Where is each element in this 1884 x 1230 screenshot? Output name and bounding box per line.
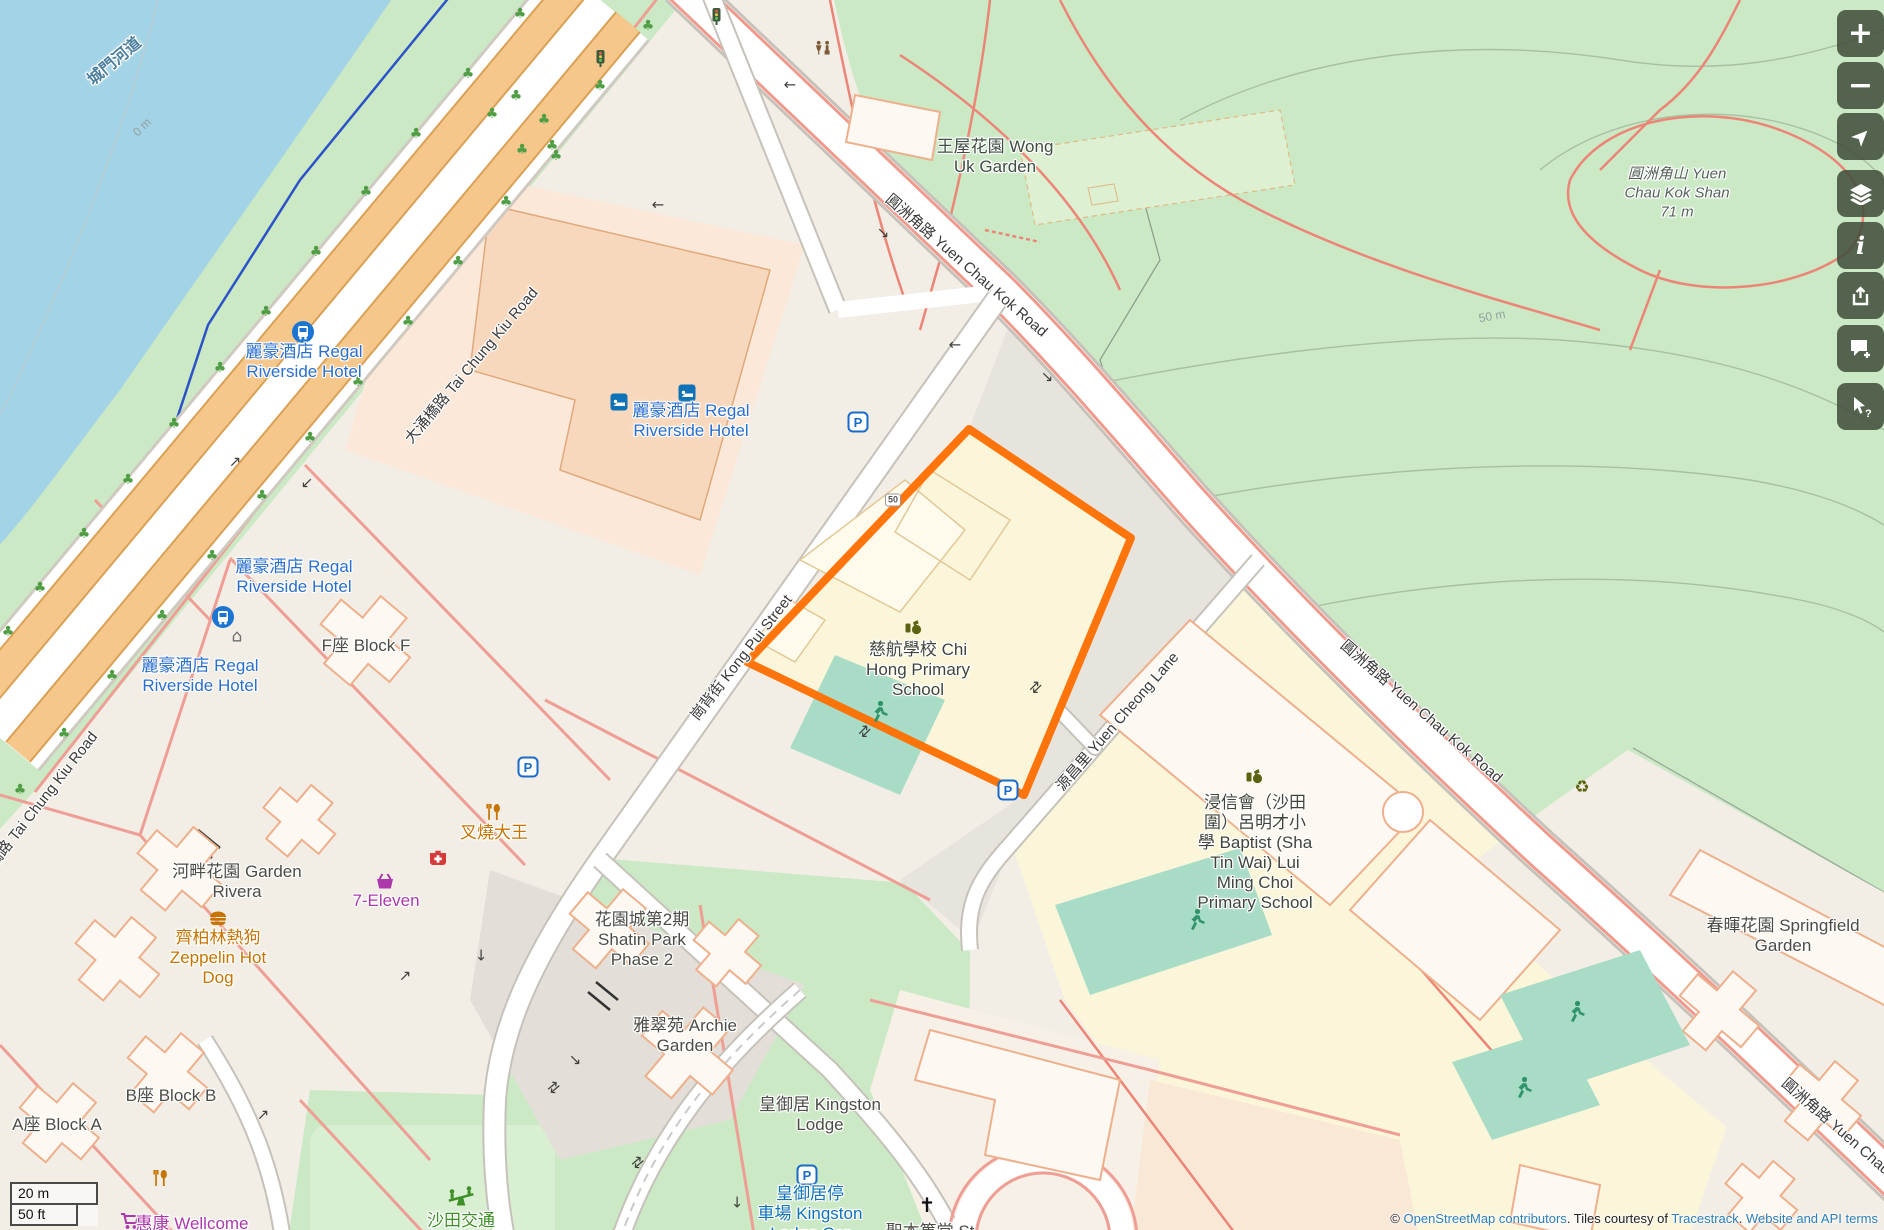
oneway-arrow-icon: ↓ (475, 949, 488, 964)
st-benedict-label: 聖本篤堂 St (886, 1222, 975, 1230)
tree-icon: ♣ (256, 489, 269, 503)
parking-icon: P (518, 757, 539, 778)
school-icon (1245, 769, 1264, 786)
info-icon: i (1856, 231, 1865, 260)
attribution-sep: . (1739, 1211, 1746, 1226)
wellcome-label: 惠康 Wellcome (135, 1214, 248, 1230)
scale-bar: 20 m 50 ft (10, 1182, 98, 1226)
wong-uk-garden-label: 王屋花園 WongUk Garden (937, 137, 1054, 177)
tree-icon: ♣ (538, 113, 551, 127)
info-button[interactable]: i (1837, 222, 1884, 269)
tree-icon: ♣ (58, 727, 71, 741)
archie-garden-label: 雅翠苑 ArchieGarden (633, 1016, 737, 1056)
zoom-in-button[interactable]: + (1837, 10, 1884, 57)
tracestrack-link[interactable]: Tracestrack (1671, 1211, 1738, 1226)
attribution: © OpenStreetMap contributors. Tiles cour… (1390, 1211, 1878, 1226)
tree-icon: ♣ (500, 195, 513, 209)
shelter-icon: ⌂ (232, 629, 243, 646)
tree-icon: ♣ (304, 431, 317, 445)
hotel-icon (679, 385, 696, 402)
share-icon (1850, 285, 1872, 307)
svg-text:P: P (1004, 783, 1013, 798)
runner-icon (1565, 1001, 1585, 1024)
tree-icon: ♣ (310, 245, 323, 259)
plus-icon: + (1848, 19, 1873, 49)
regal-riverside-hotel-4-label: 麗豪酒店 RegalRiverside Hotel (632, 401, 749, 441)
regal-riverside-hotel-3-label: 麗豪酒店 RegalRiverside Hotel (141, 656, 258, 696)
tree-icon: ♣ (402, 315, 415, 329)
a-block-label: A座 Block A (12, 1115, 102, 1135)
runner-icon (1512, 1077, 1532, 1100)
tree-icon: ♣ (510, 89, 523, 103)
note-bubble-icon (1849, 338, 1872, 360)
bus-icon (292, 321, 314, 343)
query-features-button[interactable]: ? (1837, 383, 1884, 430)
oneway-arrow-icon: ↘ (1041, 370, 1054, 385)
parking-icon: P (797, 1165, 818, 1186)
tree-icon: ♣ (122, 473, 135, 487)
garden-lawn-small (1088, 184, 1118, 205)
svg-text:P: P (854, 415, 863, 430)
tree-icon: ♣ (516, 143, 529, 157)
garden-rivera-label: 河畔花園 GardenRivera (172, 862, 301, 902)
hotel-icon (611, 394, 628, 411)
locate-button[interactable] (1837, 113, 1884, 160)
tree-icon: ♣ (34, 581, 47, 595)
oneway-arrow-icon: ↓ (731, 1196, 744, 1211)
zeppelin-hot-dog-label: 齊柏林熱狗Zeppelin HotDog (170, 928, 266, 988)
parking-icon: P (848, 412, 869, 433)
oneway-arrow-icon: ← (949, 338, 962, 353)
tree-icon: ♣ (78, 527, 91, 541)
oneway-arrow-icon: ↘ (569, 1053, 582, 1068)
sign50-icon: 50 (885, 494, 901, 507)
terms-link[interactable]: Website and API terms (1746, 1211, 1878, 1226)
shatin-playground-label: 沙田交通 (427, 1211, 495, 1230)
yuen-chau-kok-shan-label: 圓洲角山 YuenChau Kok Shan71 m (1624, 165, 1729, 222)
basket-icon (375, 872, 395, 890)
tree-icon: ♣ (594, 79, 607, 93)
regal-riverside-hotel-2-label: 麗豪酒店 RegalRiverside Hotel (235, 557, 352, 597)
svg-text:P: P (803, 1168, 812, 1183)
springfield-garden-label: 春暉花園 SpringfieldGarden (1706, 916, 1859, 956)
chi-hong-primary-school-label: 慈航學校 ChiHong PrimarySchool (866, 640, 970, 700)
zoom-out-button[interactable]: − (1837, 62, 1884, 109)
school-icon (904, 620, 923, 637)
traffic-icon (713, 8, 722, 26)
tree-icon: ♣ (486, 107, 499, 121)
svg-text:?: ? (1865, 408, 1872, 419)
oneway-arrow-icon: ↗ (229, 455, 242, 470)
tree-icon: ♣ (168, 417, 181, 431)
map-viewport[interactable]: 城門河道0 m50 m王屋花園 WongUk Garden圓洲角山 YuenCh… (0, 0, 1884, 1230)
kingston-lodge-car-park-label: 皇御居停車場 KingstonLodge Car (758, 1184, 863, 1230)
tree-icon: ♣ (550, 149, 563, 163)
minus-icon: − (1848, 71, 1873, 101)
oneway-arrow-icon: ↗ (257, 1108, 270, 1123)
church-cross-icon: ✝ (919, 1195, 936, 1215)
map-canvas (0, 0, 1884, 1230)
burger-icon (208, 911, 228, 926)
baptist-lui-ming-choi-primary-school-label: 浸信會（沙田圍）呂明才小學 Baptist (ShaTin Wai) LuiMi… (1197, 793, 1312, 913)
tree-icon: ♣ (642, 19, 655, 33)
add-note-button[interactable] (1837, 325, 1884, 372)
seven-eleven-label: 7-Eleven (352, 891, 419, 911)
tree-icon: ♣ (360, 185, 373, 199)
tree-icon: ♣ (452, 255, 465, 269)
tree-icon: ♣ (14, 783, 27, 797)
recycle-icon: ♻ (1574, 780, 1589, 797)
shatin-park-phase-2-label: 花園城第2期Shatin ParkPhase 2 (595, 910, 689, 970)
oneway-arrow-icon: ↙ (301, 476, 314, 491)
tree-icon: ♣ (514, 7, 527, 21)
parking-icon: P (998, 780, 1019, 801)
tree-icon: ♣ (260, 305, 273, 319)
tree-icon: ♣ (410, 127, 423, 141)
runner-icon (868, 701, 888, 724)
osm-contributors-link[interactable]: OpenStreetMap contributors (1404, 1211, 1567, 1226)
layers-button[interactable] (1837, 170, 1884, 217)
fork-icon (151, 1169, 169, 1187)
b-block-label: B座 Block B (126, 1086, 217, 1106)
tree-icon: ♣ (462, 67, 475, 81)
locate-arrow-icon (1850, 126, 1872, 148)
kingston-lodge-label: 皇御居 KingstonLodge (759, 1095, 881, 1135)
regal-riverside-hotel-1-label: 麗豪酒店 RegalRiverside Hotel (245, 342, 362, 382)
oneway-arrow-icon: ← (784, 78, 797, 93)
oneway-arrow-icon: ← (652, 198, 665, 213)
query-cursor-icon: ? (1849, 395, 1873, 419)
oneway-arrow-icon: ↗ (399, 969, 412, 984)
fork-icon (484, 803, 502, 821)
char-siu-king-label: 叉燒大王 (460, 823, 528, 843)
tree-icon: ♣ (206, 549, 219, 563)
attribution-mid: . Tiles courtesy of (1567, 1211, 1672, 1226)
share-button[interactable] (1837, 272, 1884, 319)
tree-icon: ♣ (156, 609, 169, 623)
svg-text:P: P (524, 760, 533, 775)
tree-icon: ♣ (2, 625, 15, 639)
oneway-arrow-icon: ↘ (877, 226, 890, 241)
scale-imperial: 50 ft (10, 1205, 78, 1226)
tree-icon: ♣ (214, 361, 227, 375)
layers-icon (1849, 183, 1873, 205)
firstaid-icon (428, 849, 448, 867)
scale-metric: 20 m (10, 1182, 98, 1205)
traffic-icon (597, 50, 606, 68)
toilets-icon (815, 41, 832, 56)
tree-icon: ♣ (106, 669, 119, 683)
attribution-prefix: © (1390, 1211, 1403, 1226)
bus-icon (212, 606, 234, 628)
f-block-label: F座 Block F (322, 636, 411, 656)
seesaw-icon (448, 1186, 475, 1207)
